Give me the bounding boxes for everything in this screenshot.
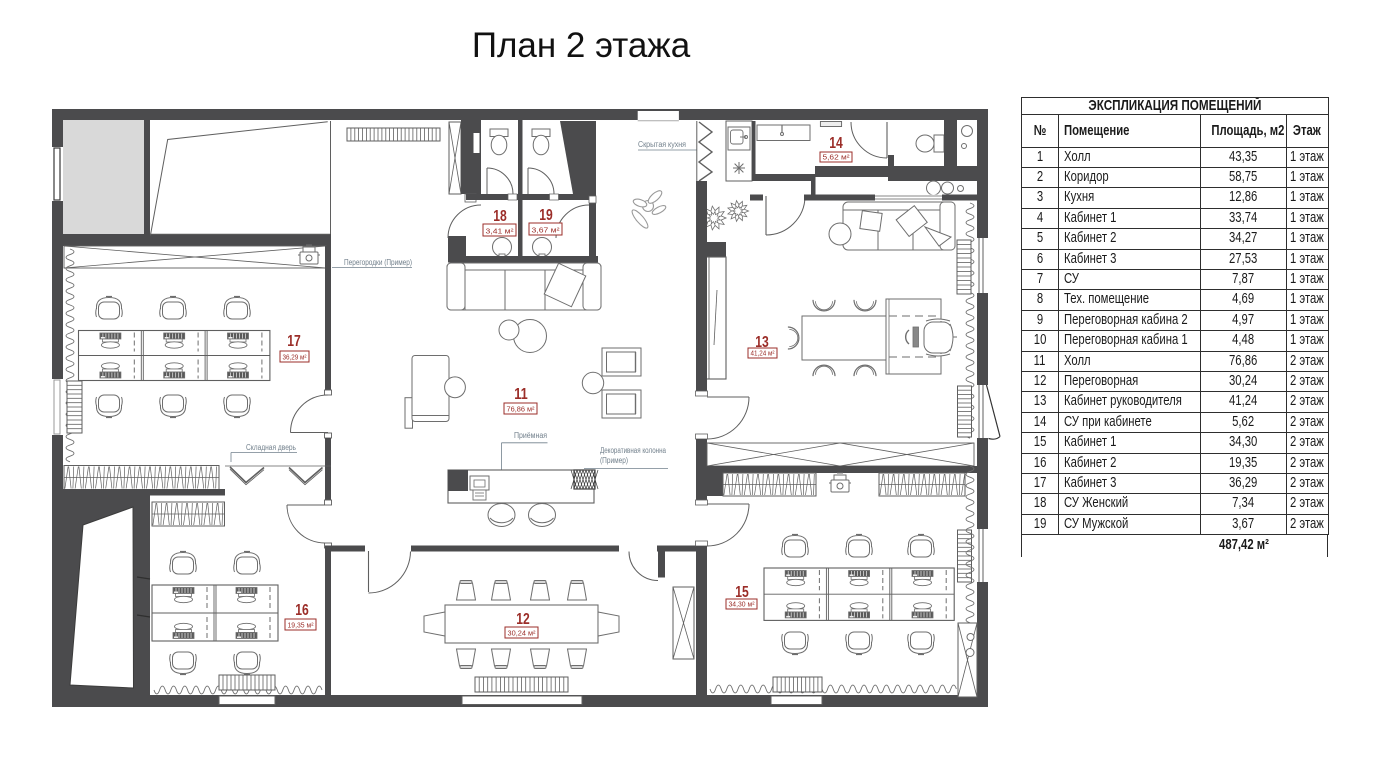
svg-text:Скрытая кухня: Скрытая кухня <box>638 140 686 149</box>
svg-text:Декоративная колонна: Декоративная колонна <box>600 446 666 455</box>
svg-text:3,41 м²: 3,41 м² <box>486 227 515 236</box>
svg-text:19: 19 <box>539 207 553 224</box>
svg-text:18: 18 <box>493 208 507 225</box>
svg-text:30,24 м²: 30,24 м² <box>508 629 536 638</box>
svg-text:12: 12 <box>516 611 530 628</box>
svg-text:76,86 м²: 76,86 м² <box>507 405 535 414</box>
svg-text:17: 17 <box>287 333 301 350</box>
svg-text:5,62 м²: 5,62 м² <box>823 153 851 162</box>
svg-text:19,35 м²: 19,35 м² <box>288 621 314 630</box>
svg-text:15: 15 <box>735 584 749 601</box>
svg-text:34,30 м²: 34,30 м² <box>729 600 755 609</box>
svg-text:Перегородки (Пример): Перегородки (Пример) <box>344 258 412 267</box>
svg-text:(Пример): (Пример) <box>600 456 628 465</box>
svg-text:Приёмная: Приёмная <box>514 431 547 440</box>
svg-text:41,24 м²: 41,24 м² <box>751 349 775 358</box>
svg-text:14: 14 <box>829 135 843 152</box>
svg-text:16: 16 <box>295 602 309 619</box>
svg-text:11: 11 <box>514 386 528 403</box>
svg-text:Складная дверь: Складная дверь <box>246 443 296 452</box>
svg-text:3,67 м²: 3,67 м² <box>532 226 561 235</box>
svg-text:36,29 м²: 36,29 м² <box>283 353 307 362</box>
